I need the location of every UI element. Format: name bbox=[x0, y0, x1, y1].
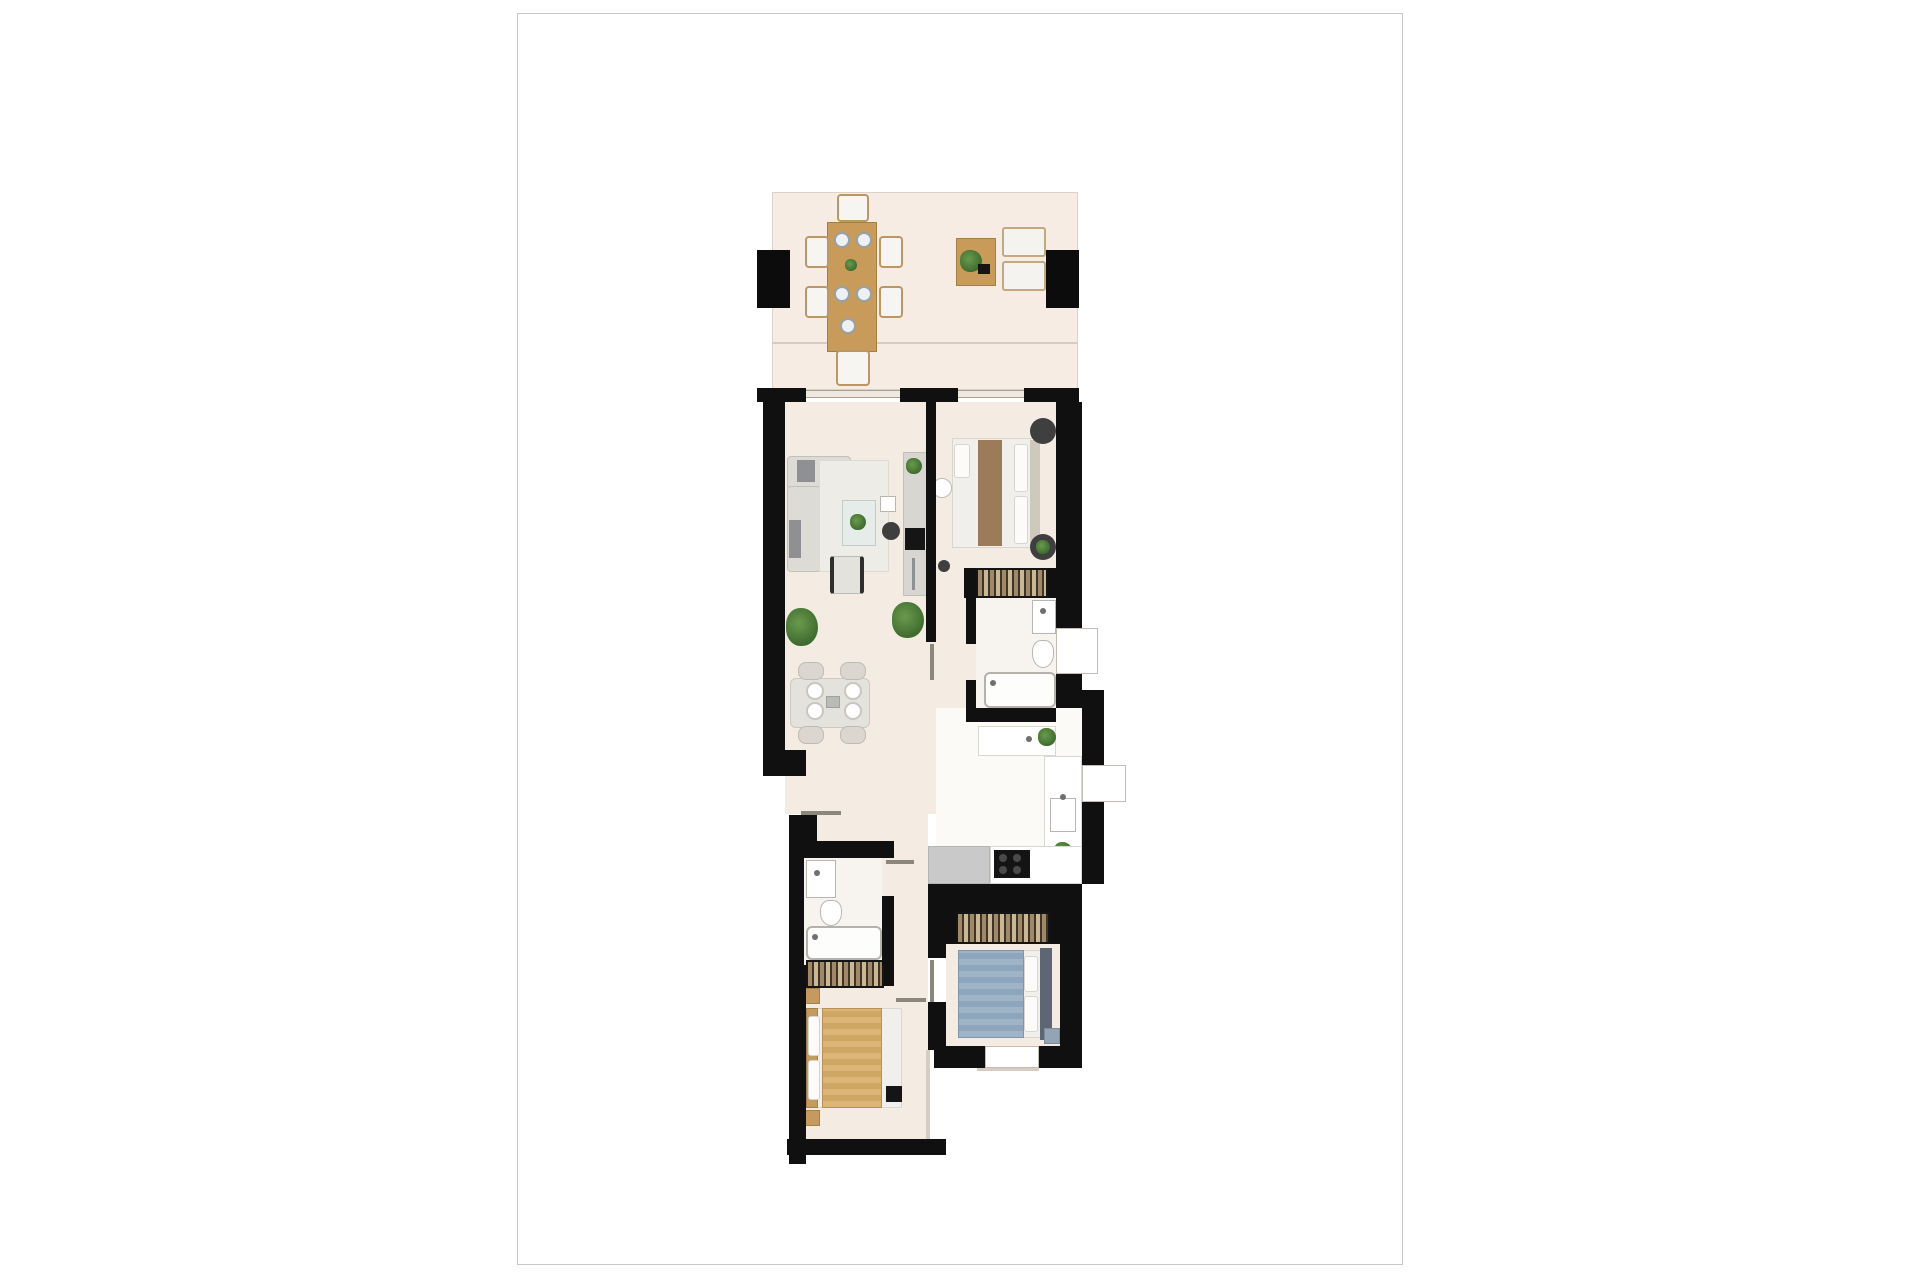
wall-bedroom3-left bbox=[789, 965, 806, 1164]
terrace-lounge-chair bbox=[1002, 261, 1046, 291]
armchair bbox=[830, 556, 864, 594]
bed2-nightstand bbox=[1044, 1028, 1060, 1044]
terrace-centerpiece bbox=[845, 259, 857, 271]
bed1-pillow bbox=[1014, 496, 1028, 544]
wall-wardrobe1-cap bbox=[964, 568, 976, 598]
bed2-pillow bbox=[1024, 996, 1038, 1032]
kitchen-plate bbox=[806, 702, 824, 720]
bed1-runner bbox=[978, 440, 1002, 546]
bath1-door-leaf bbox=[930, 644, 934, 680]
terrace-plate bbox=[834, 232, 850, 248]
bath1-tub bbox=[984, 672, 1056, 708]
wall-bath2-top bbox=[789, 841, 894, 858]
tv-screen bbox=[905, 528, 925, 550]
wall-wardrobe2-cap bbox=[1050, 912, 1060, 944]
bath2-faucet bbox=[814, 870, 820, 876]
kitchen-chair bbox=[798, 662, 824, 680]
kitchen-plate bbox=[844, 682, 862, 700]
terrace-plate bbox=[856, 286, 872, 302]
bath1-window bbox=[1056, 628, 1098, 674]
stove-burner bbox=[999, 854, 1007, 862]
terrace-lounge-chair bbox=[1002, 227, 1046, 257]
wall-kitchen-bottom bbox=[928, 884, 1082, 912]
terrace-pillar-right bbox=[1046, 250, 1079, 308]
living-plant bbox=[786, 608, 818, 646]
kitchen-faucet bbox=[1026, 736, 1032, 742]
kitchen-plant bbox=[1038, 728, 1056, 746]
terrace-chair bbox=[837, 194, 869, 222]
wall-left bbox=[763, 388, 785, 764]
bed3-tv bbox=[886, 1086, 902, 1102]
side-table-round bbox=[882, 522, 900, 540]
terrace-plate bbox=[834, 286, 850, 302]
terrace-plate bbox=[840, 318, 856, 334]
wall-bath1-bottom bbox=[966, 708, 1056, 722]
bed1-nightstand bbox=[1030, 418, 1056, 444]
wall-top-mid bbox=[900, 388, 958, 402]
bed2-pillow bbox=[1024, 956, 1038, 992]
wall-wardrobe2-cap bbox=[946, 912, 956, 944]
wall-bath2-right bbox=[882, 896, 894, 965]
stove-burner bbox=[1013, 866, 1021, 874]
terrace-pillar-left bbox=[757, 250, 790, 308]
bedroom2-terrace-door bbox=[985, 1046, 1039, 1068]
bath2-door-leaf bbox=[886, 860, 914, 864]
bedroom1-stool bbox=[938, 560, 950, 572]
kitchen-sink-faucet bbox=[1060, 794, 1066, 800]
wall-bedroom2-right bbox=[1060, 912, 1082, 1068]
wall-bath1-left-top bbox=[966, 598, 976, 644]
terrace-chair bbox=[879, 236, 903, 268]
kitchen-chair bbox=[840, 726, 866, 744]
wall-right-upper bbox=[1056, 402, 1082, 628]
side-table-square bbox=[880, 496, 896, 512]
bath1-faucet bbox=[1040, 608, 1046, 614]
wall-kitchen-right-1 bbox=[1082, 708, 1104, 765]
kitchen-table-deco bbox=[826, 696, 840, 708]
bed1-chaise bbox=[954, 444, 970, 478]
bedroom2-door-leaf bbox=[930, 960, 934, 1002]
bed3-duvet bbox=[822, 1008, 882, 1108]
wall-corridor-right-1 bbox=[928, 912, 946, 958]
bed3-pillow bbox=[808, 1060, 820, 1100]
console-plant bbox=[906, 458, 922, 474]
sliding-door-living bbox=[806, 390, 900, 398]
wall-kitchen-right-2 bbox=[1082, 802, 1104, 884]
wardrobe-bedroom1 bbox=[976, 568, 1048, 598]
stove-burner bbox=[999, 866, 1007, 874]
bath2-toilet bbox=[820, 900, 842, 926]
terrace-midline bbox=[772, 342, 1078, 344]
bath1-vanity bbox=[1032, 600, 1056, 634]
kitchen-plate bbox=[806, 682, 824, 700]
kitchen-window bbox=[1082, 765, 1126, 802]
kitchen-chair bbox=[840, 662, 866, 680]
wall-kitchen-step bbox=[1056, 690, 1104, 708]
wardrobe-bedroom2 bbox=[956, 912, 1050, 944]
wall-bath2-left bbox=[789, 855, 804, 965]
wall-bedroom3-cap bbox=[884, 956, 894, 986]
sofa-chaise-pad bbox=[797, 460, 815, 482]
terrace-chair bbox=[879, 286, 903, 318]
wall-bedroom3-bottom bbox=[787, 1139, 946, 1155]
bed1-headboard bbox=[1030, 440, 1040, 546]
bath2-tub bbox=[806, 926, 882, 960]
bath2-vanity bbox=[806, 860, 836, 898]
bedroom2-door-threshold bbox=[977, 1068, 1039, 1071]
console-rail bbox=[912, 558, 915, 590]
terrace-tray bbox=[978, 264, 990, 274]
kitchen-plate bbox=[844, 702, 862, 720]
bed1-pillow bbox=[1014, 444, 1028, 492]
wall-divider-living bbox=[926, 402, 936, 642]
kitchen-chair bbox=[798, 726, 824, 744]
terrace-chair bbox=[805, 286, 829, 318]
bed3-pillow bbox=[808, 1016, 820, 1056]
bed2-duvet bbox=[958, 950, 1024, 1038]
bedroom3-door-leaf bbox=[896, 998, 926, 1002]
bed2-headboard bbox=[1040, 948, 1052, 1040]
terrace-chair bbox=[836, 350, 870, 386]
bath1-tub-faucet bbox=[990, 680, 996, 686]
kitchen-sink bbox=[1050, 798, 1076, 832]
bedroom3-window-line bbox=[926, 1050, 930, 1139]
wall-entry-jog bbox=[763, 750, 806, 776]
bath2-tub-faucet bbox=[812, 934, 818, 940]
kitchen-gray-cabinet bbox=[928, 846, 990, 884]
wall-bath1-left-bottom bbox=[966, 680, 976, 708]
wardrobe-bedroom3 bbox=[806, 960, 884, 988]
wall-top-right bbox=[1024, 388, 1079, 402]
wall-bedroom2-bottom-right bbox=[1039, 1046, 1079, 1068]
entry-door-leaf bbox=[801, 811, 841, 815]
terrace-plate bbox=[856, 232, 872, 248]
stove-burner bbox=[1013, 854, 1021, 862]
living-plant bbox=[892, 602, 924, 638]
terrace-chair bbox=[805, 236, 829, 268]
bath1-toilet bbox=[1032, 640, 1054, 668]
floor-plan-canvas bbox=[0, 0, 1920, 1280]
wall-corridor-right-2 bbox=[928, 1002, 946, 1050]
bed1-nightstand-plant bbox=[1036, 540, 1050, 554]
coffee-table-plant bbox=[850, 514, 866, 530]
sliding-door-bedroom1 bbox=[958, 390, 1024, 398]
sofa-throw bbox=[789, 520, 801, 558]
